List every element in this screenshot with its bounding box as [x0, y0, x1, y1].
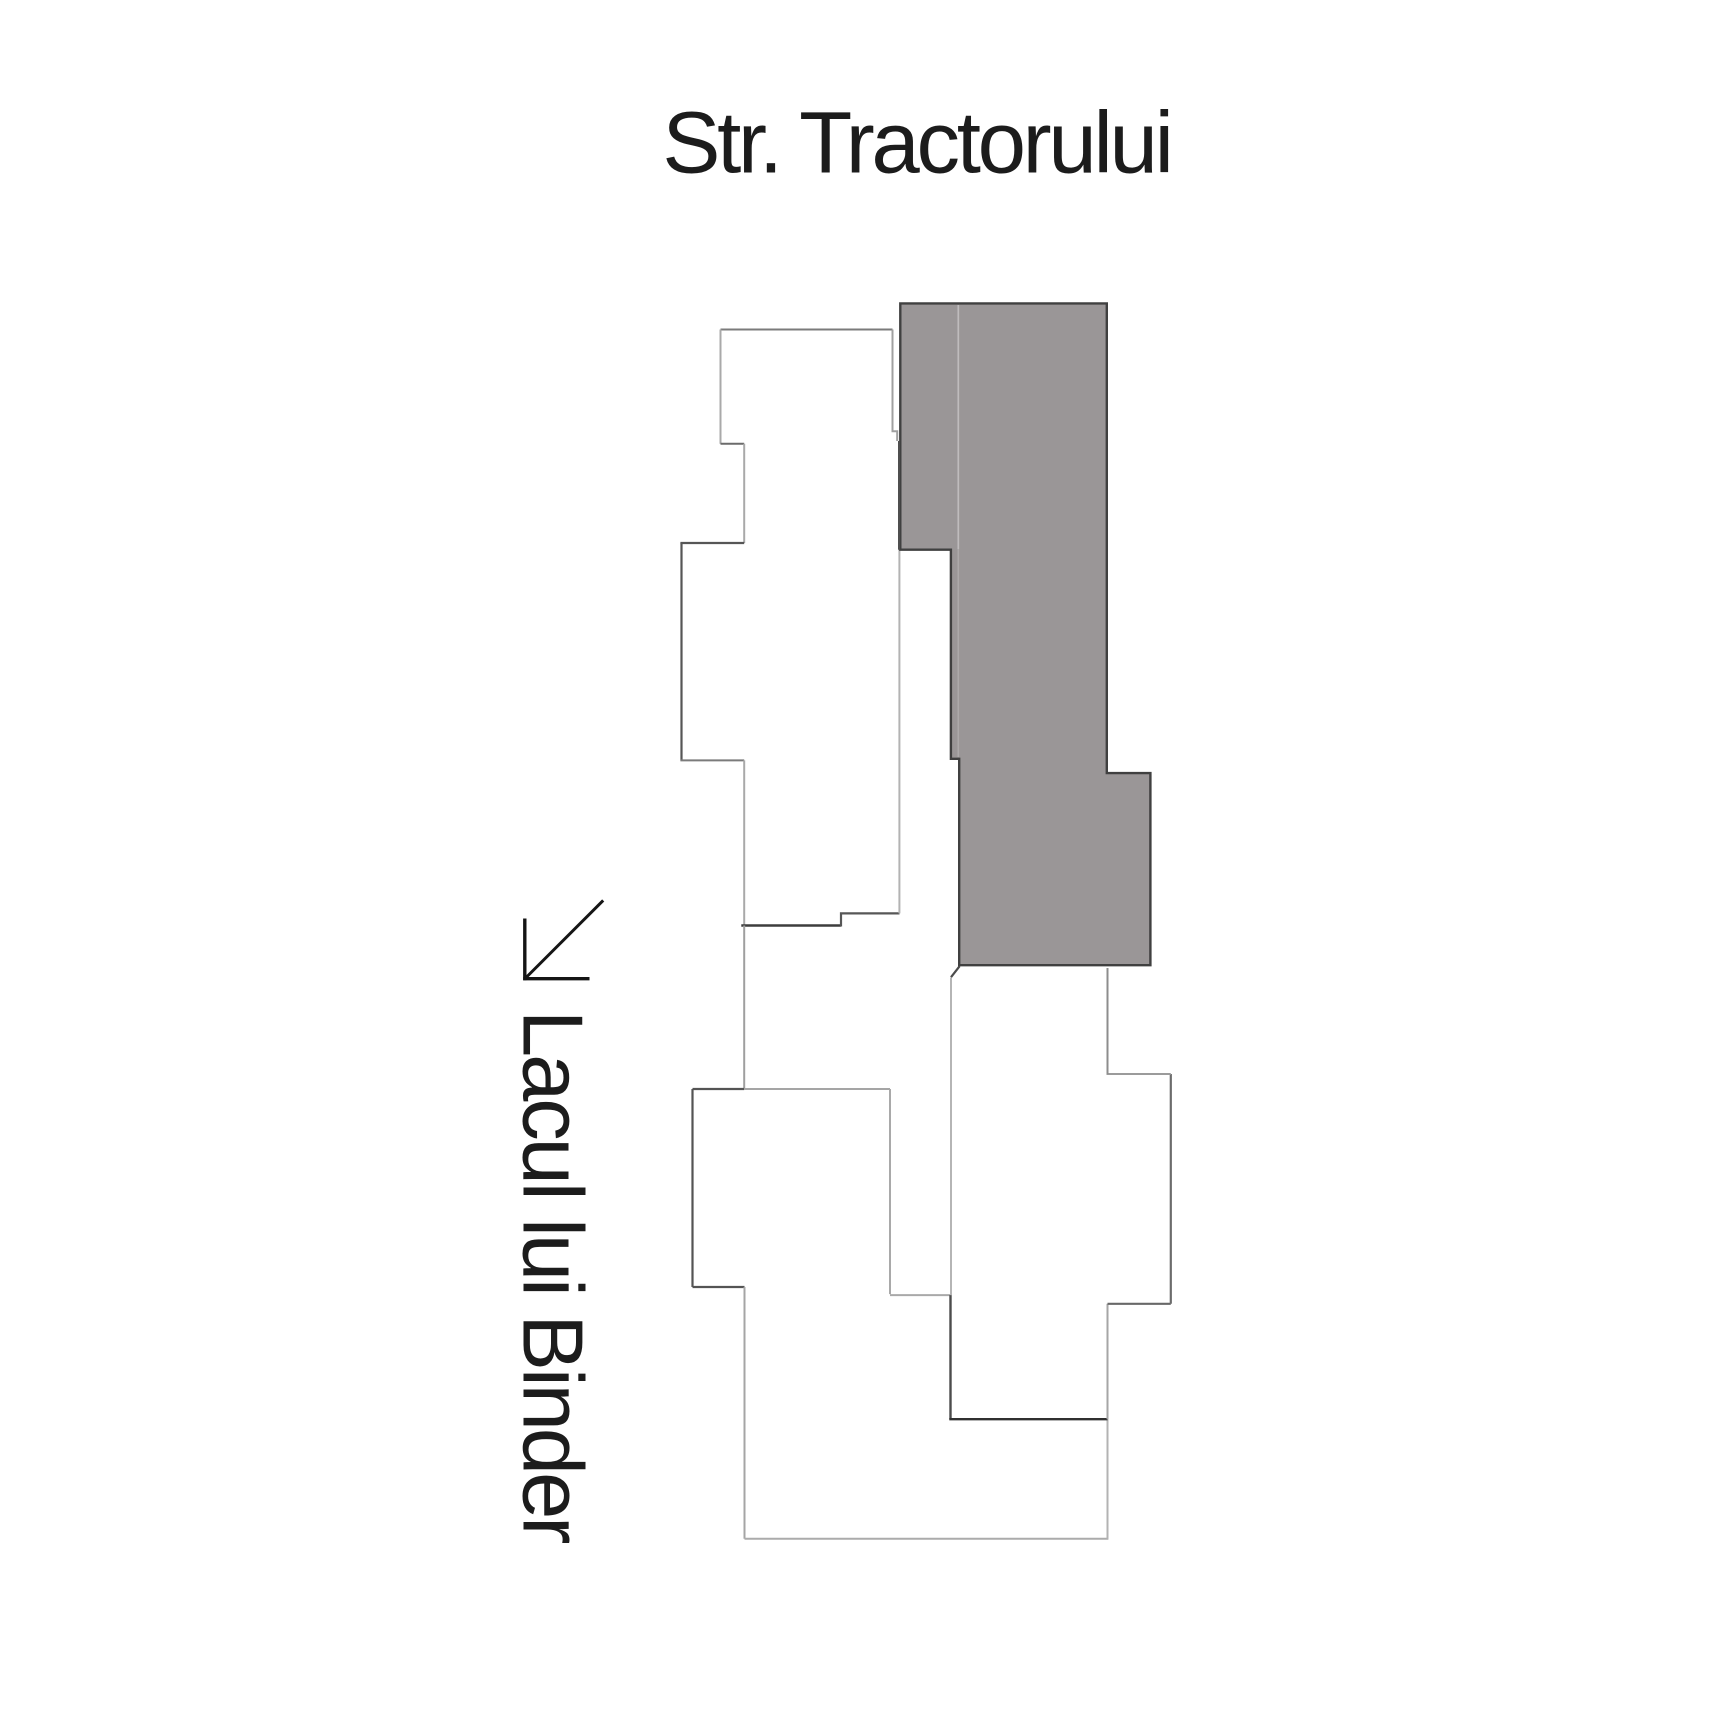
svg-text:Lacul lui Binder: Lacul lui Binder — [505, 1010, 600, 1543]
svg-text:Str. Tractorului: Str. Tractorului — [662, 95, 1170, 192]
